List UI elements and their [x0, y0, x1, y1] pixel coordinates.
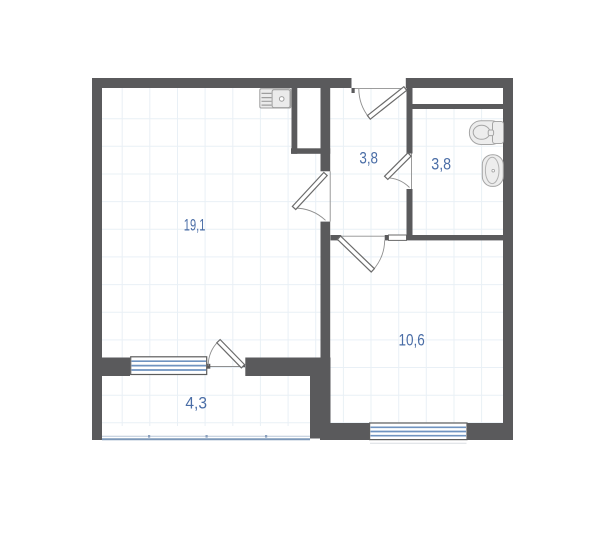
svg-text:10,6: 10,6: [399, 331, 425, 349]
svg-text:3,8: 3,8: [359, 149, 378, 167]
svg-text:3,8: 3,8: [431, 155, 451, 173]
svg-text:4,3: 4,3: [185, 394, 207, 412]
svg-text:19,1: 19,1: [184, 217, 206, 235]
